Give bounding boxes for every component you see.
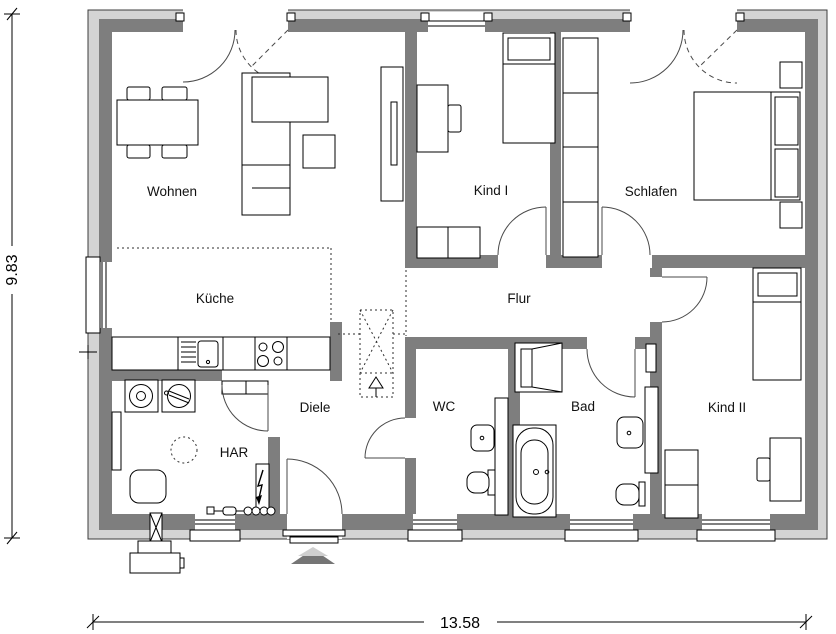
desk <box>770 438 801 501</box>
shower <box>515 343 562 392</box>
wall-diele-wc <box>405 458 416 514</box>
nightstand <box>780 202 802 228</box>
wall-counter-stub <box>330 322 342 381</box>
kitchen-counter <box>112 337 330 370</box>
window-har <box>190 514 240 541</box>
mattress <box>775 149 798 197</box>
room-label-kind2: Kind II <box>708 400 746 415</box>
window-wc <box>408 514 462 541</box>
chair <box>162 87 187 100</box>
installation-wall <box>495 398 508 515</box>
terrace-door-schlafen-opening <box>630 9 737 32</box>
floor-plan-drawing: Wohnen Küche Kind I Schlafen Flur Diele … <box>0 0 836 634</box>
pillow <box>508 38 550 60</box>
wall-kueche-har <box>112 369 222 381</box>
shelf <box>112 412 121 470</box>
room-label-kueche: Küche <box>196 291 234 306</box>
window-kueche-sill <box>86 257 100 333</box>
har-door-threshold <box>222 381 246 394</box>
wall-flur-north <box>652 255 805 268</box>
washbasin <box>617 417 643 448</box>
pillow <box>758 273 797 296</box>
dimension-vertical: 9.83 <box>4 8 21 544</box>
wardrobe <box>665 450 698 518</box>
tv <box>391 102 397 165</box>
window-bad <box>565 514 638 541</box>
chair <box>162 145 187 158</box>
door-frame-block <box>623 13 631 21</box>
nightstand <box>780 62 802 88</box>
installation-wall <box>645 387 658 473</box>
window-kind2 <box>697 514 775 541</box>
room-label-har: HAR <box>220 445 249 460</box>
room-label-diele: Diele <box>300 400 331 415</box>
terrace-door-wohnen-opening <box>183 9 288 32</box>
room-label-wc: WC <box>433 399 456 414</box>
washing-machine <box>125 380 158 412</box>
har-door-threshold <box>246 381 268 394</box>
window-frame-block <box>421 13 429 21</box>
floor-plan-page: Wohnen Küche Kind I Schlafen Flur Diele … <box>0 0 836 634</box>
sofa-seat <box>252 77 328 122</box>
desk <box>417 85 448 152</box>
door-frame-block <box>736 13 744 21</box>
toilet <box>467 472 489 493</box>
dimension-width-label: 13.58 <box>440 615 480 632</box>
window-frame-block <box>484 13 492 21</box>
room-label-kind1: Kind I <box>474 183 509 198</box>
dimension-horizontal: 13.58 <box>87 614 812 632</box>
room-label-wohnen: Wohnen <box>147 184 197 199</box>
entrance-arrow-icon <box>291 547 335 564</box>
window-kind1-opening <box>428 12 485 32</box>
wall-har-diele <box>268 437 280 514</box>
toilet <box>616 484 639 505</box>
room-label-schlafen: Schlafen <box>625 184 678 199</box>
radiator <box>646 344 656 372</box>
dining-table <box>117 100 198 145</box>
mattress <box>775 97 798 145</box>
door-frame-block <box>176 13 184 21</box>
wall-bad-kind2 <box>650 268 662 277</box>
electrical-panel <box>256 464 269 510</box>
room-label-bad: Bad <box>571 399 595 414</box>
chair <box>127 145 150 158</box>
heat-pump-outdoor-unit <box>130 541 184 573</box>
washbasin <box>471 425 494 451</box>
wall-wohnen-kind1 <box>405 32 417 255</box>
wall-diele-wc <box>405 349 416 418</box>
storage-tank <box>130 470 166 503</box>
toilet-tank <box>639 482 645 506</box>
dryer <box>162 380 195 412</box>
front-door-opening <box>283 514 345 543</box>
room-label-flur: Flur <box>507 291 531 306</box>
exterior-walls <box>88 10 827 539</box>
chair <box>448 105 461 132</box>
chair <box>757 458 770 481</box>
chair <box>127 87 150 100</box>
door-frame-block <box>287 13 295 21</box>
side-table <box>303 135 335 168</box>
bathtub <box>513 425 556 517</box>
dimension-height-label: 9.83 <box>4 254 21 285</box>
